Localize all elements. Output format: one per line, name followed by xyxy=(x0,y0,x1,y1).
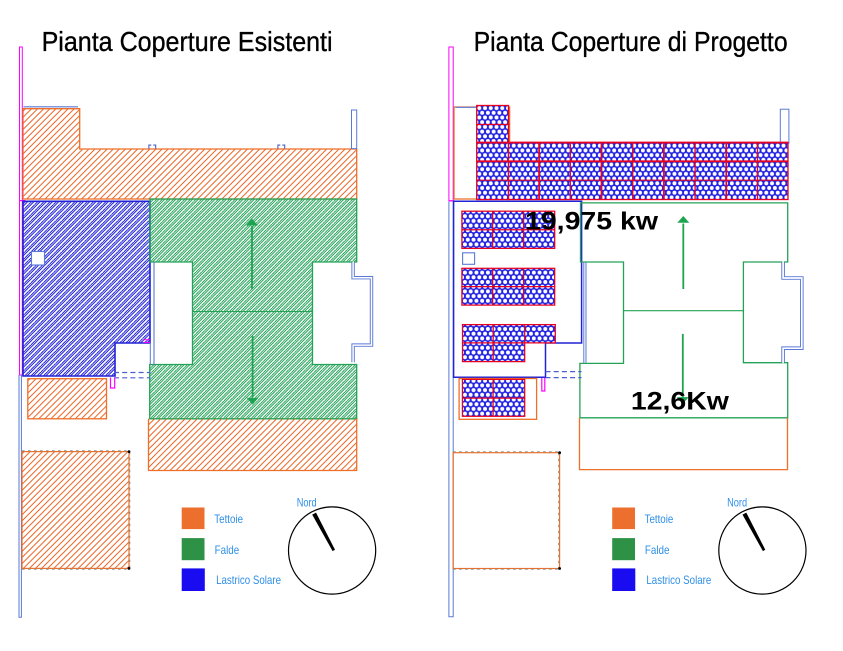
svg-text:Pianta Coperture Esistenti: Pianta Coperture Esistenti xyxy=(42,26,333,57)
svg-text:Pianta Coperture di Progetto: Pianta Coperture di Progetto xyxy=(474,26,788,57)
svg-text:Falde: Falde xyxy=(645,543,670,557)
svg-text:Lastrico Solare: Lastrico Solare xyxy=(216,573,281,587)
svg-text:Lastrico Solare: Lastrico Solare xyxy=(646,573,711,587)
svg-text:Tettoie: Tettoie xyxy=(214,512,243,526)
svg-text:Falde: Falde xyxy=(215,543,240,557)
svg-text:19,975 kw: 19,975 kw xyxy=(525,208,659,236)
svg-text:Nord: Nord xyxy=(297,495,317,509)
svg-text:12,6Kw: 12,6Kw xyxy=(631,388,730,416)
svg-text:Nord: Nord xyxy=(727,495,747,509)
svg-text:Tettoie: Tettoie xyxy=(645,512,674,526)
